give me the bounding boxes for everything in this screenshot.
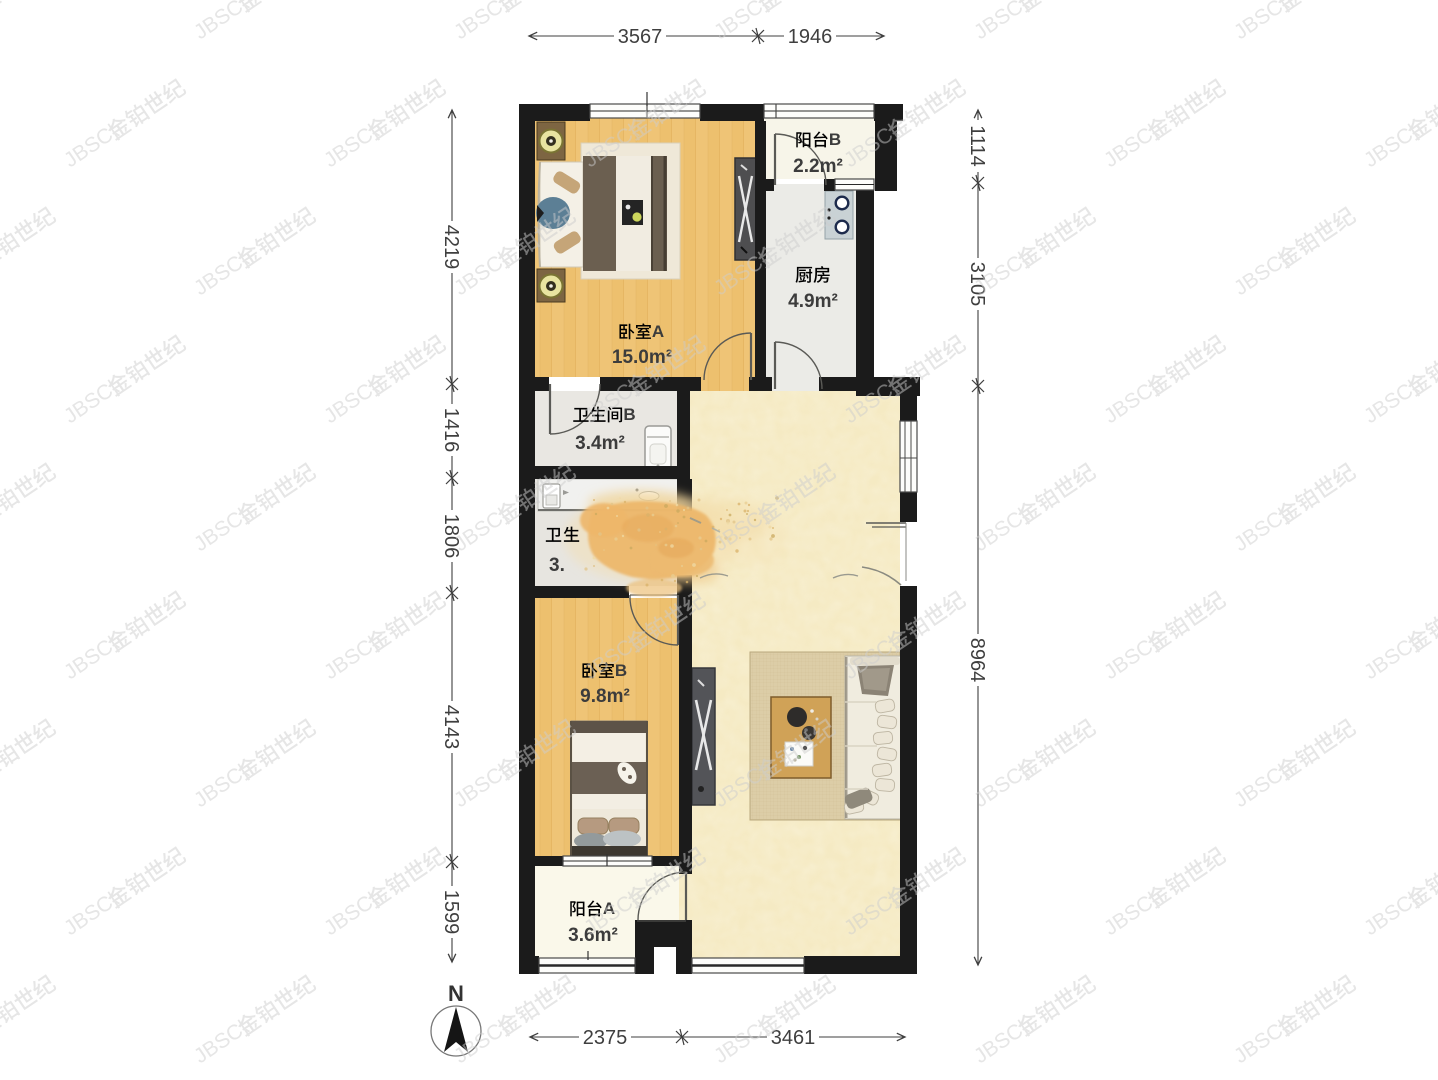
svg-text:4.9m²: 4.9m² — [788, 291, 838, 312]
svg-text:B: B — [623, 405, 635, 424]
svg-text:1416: 1416 — [440, 408, 462, 453]
svg-text:9.8m²: 9.8m² — [580, 686, 630, 707]
svg-text:1946: 1946 — [788, 26, 833, 48]
svg-text:4219: 4219 — [440, 225, 462, 270]
svg-text:3461: 3461 — [771, 1027, 816, 1049]
svg-text:A: A — [652, 322, 664, 341]
svg-text:2.2m²: 2.2m² — [793, 156, 843, 177]
svg-text:1599: 1599 — [440, 890, 462, 935]
svg-text:3.4m²: 3.4m² — [575, 433, 625, 454]
svg-text:B: B — [829, 130, 841, 149]
svg-text:1114: 1114 — [966, 125, 988, 167]
svg-text:4143: 4143 — [440, 705, 462, 750]
svg-text:8964: 8964 — [966, 638, 988, 683]
svg-text:N: N — [448, 981, 464, 1006]
svg-text:2375: 2375 — [583, 1027, 628, 1049]
svg-text:3567: 3567 — [618, 26, 663, 48]
svg-text:3.: 3. — [549, 555, 565, 576]
